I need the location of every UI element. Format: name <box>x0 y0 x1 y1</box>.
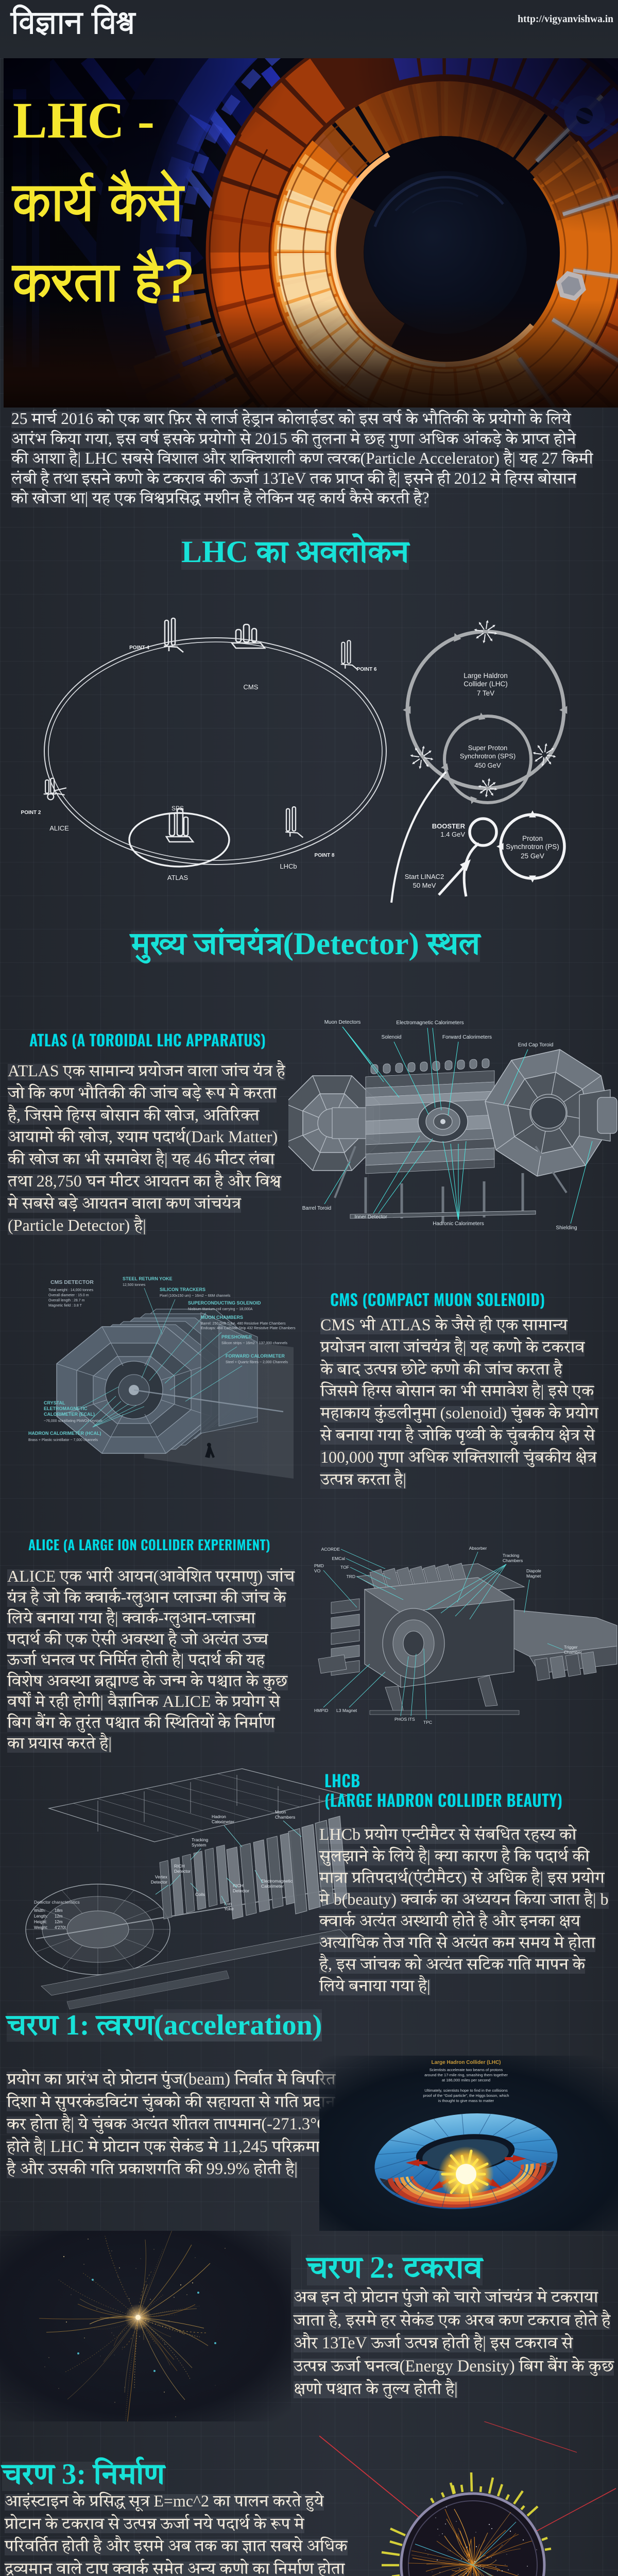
svg-text:1.4 GeV: 1.4 GeV <box>440 831 465 838</box>
svg-text:System: System <box>192 1842 206 1848</box>
svg-text:SILICON TRACKERS: SILICON TRACKERS <box>160 1287 205 1292</box>
svg-text:Hadronic Calorimeters: Hadronic Calorimeters <box>433 1221 484 1227</box>
svg-text:PMD: PMD <box>314 1563 324 1568</box>
svg-text:Start LINAC2: Start LINAC2 <box>405 873 444 880</box>
svg-text:Detector: Detector <box>151 1879 167 1885</box>
svg-text:at 186,000 miles per second: at 186,000 miles per second <box>442 2078 490 2082</box>
svg-text:proof of the “God particle”, t: proof of the “God particle”, the Higgs b… <box>423 2093 509 2098</box>
svg-text:EMCal: EMCal <box>332 1556 345 1561</box>
svg-text:Inner Detector: Inner Detector <box>354 1214 387 1220</box>
svg-text:Coils: Coils <box>195 1892 205 1897</box>
svg-text:TRD: TRD <box>347 1574 355 1579</box>
svg-text:Collider (LHC): Collider (LHC) <box>463 680 508 688</box>
svg-text:MUON CHAMBERS: MUON CHAMBERS <box>201 1315 243 1320</box>
svg-text:LHCb: LHCb <box>280 862 297 870</box>
svg-text:Pixel (100x150 um) ~ 16m2 ~ 66: Pixel (100x150 um) ~ 16m2 ~ 66M channels <box>160 1294 231 1298</box>
svg-text:Detector characteristics: Detector characteristics <box>34 1900 80 1905</box>
svg-text:CMS DETECTOR: CMS DETECTOR <box>50 1279 94 1285</box>
svg-text:POINT 2: POINT 2 <box>21 810 41 816</box>
svg-text:Muon: Muon <box>275 1809 286 1815</box>
svg-text:POINT 6: POINT 6 <box>357 667 377 672</box>
svg-text:450 GeV: 450 GeV <box>474 761 501 769</box>
svg-text:FORWARD CALORIMETER: FORWARD CALORIMETER <box>226 1353 285 1359</box>
svg-text:L3 Magnet: L3 Magnet <box>336 1708 357 1713</box>
svg-text:POINT 4: POINT 4 <box>129 645 149 651</box>
svg-text:Detector: Detector <box>233 1888 249 1893</box>
svg-text:PHOS ITS: PHOS ITS <box>394 1717 415 1722</box>
svg-text:Electromagnetic Calorimeters: Electromagnetic Calorimeters <box>396 1020 463 1026</box>
svg-text:Calorimeter: Calorimeter <box>212 1819 234 1824</box>
svg-text:Brass + Plastic scintillator ~: Brass + Plastic scintillator ~ 7,000 cha… <box>28 1438 98 1442</box>
svg-text:ELETROMAGNETIC: ELETROMAGNETIC <box>44 1406 88 1411</box>
svg-text:Hadron: Hadron <box>212 1814 226 1819</box>
svg-text:Diapole: Diapole <box>526 1568 541 1573</box>
svg-text:Chambers: Chambers <box>503 1558 523 1563</box>
svg-text:RICH: RICH <box>233 1883 244 1888</box>
svg-text:STEEL RETURN YOKE: STEEL RETURN YOKE <box>123 1276 173 1281</box>
svg-text:7 TeV: 7 TeV <box>477 689 494 697</box>
svg-text:Calorimeter: Calorimeter <box>261 1884 284 1889</box>
svg-text:Width:: Width: <box>34 1908 46 1913</box>
svg-text:Absorber: Absorber <box>469 1546 487 1551</box>
svg-text:Muon Detectors: Muon Detectors <box>324 1020 361 1025</box>
svg-text:Silicon strips ~ 16m2 ~ 137,00: Silicon strips ~ 16m2 ~ 137,000 channels <box>221 1342 288 1345</box>
svg-text:Detector: Detector <box>174 1869 191 1874</box>
svg-text:SPS: SPS <box>171 805 184 812</box>
svg-text:Ultimately, scientists hope to: Ultimately, scientists hope to find in t… <box>424 2088 508 2093</box>
svg-text:around the 17-mile ring, smash: around the 17-mile ring, smashing them t… <box>424 2073 508 2077</box>
svg-text:ATLAS: ATLAS <box>167 874 188 882</box>
svg-text:HADRON CALORIMETER (HCAL): HADRON CALORIMETER (HCAL) <box>28 1431 101 1436</box>
svg-text:50 MeV: 50 MeV <box>413 882 436 889</box>
svg-text:End Cap Toroid: End Cap Toroid <box>518 1042 554 1048</box>
svg-text:Height:: Height: <box>34 1920 47 1924</box>
svg-text:Scientists accelerate two beam: Scientists accelerate two beams of proto… <box>430 2067 503 2072</box>
svg-text:TOF: TOF <box>340 1565 349 1570</box>
svg-text:CRYSTAL: CRYSTAL <box>44 1400 65 1405</box>
svg-text:Magnet: Magnet <box>526 1573 541 1579</box>
svg-text:12m: 12m <box>55 1920 63 1924</box>
svg-text:POINT 8: POINT 8 <box>315 853 335 858</box>
svg-text:TPC: TPC <box>423 1720 432 1725</box>
svg-text:ALICE: ALICE <box>49 824 69 832</box>
svg-text:Trigger: Trigger <box>564 1645 578 1650</box>
svg-text:RICH: RICH <box>174 1863 185 1869</box>
svg-text:HMPID: HMPID <box>314 1708 328 1713</box>
svg-text:Iron: Iron <box>224 1901 232 1906</box>
svg-text:ACORDE: ACORDE <box>321 1547 340 1552</box>
svg-text:Forward Calorimeters: Forward Calorimeters <box>442 1035 492 1040</box>
svg-text:Shielding: Shielding <box>556 1225 577 1231</box>
svg-text:Niobium titanium coil carrying: Niobium titanium coil carrying ~ 18,000A <box>188 1308 253 1311</box>
svg-text:Chambers: Chambers <box>275 1815 295 1820</box>
svg-text:Synchrotron (SPS): Synchrotron (SPS) <box>460 752 516 760</box>
svg-text:Tracking: Tracking <box>192 1837 209 1842</box>
svg-text:Electromagnetic: Electromagnetic <box>261 1878 293 1884</box>
svg-text:25 GeV: 25 GeV <box>521 852 544 860</box>
svg-text:Steel + Quartz fibres ~ 2,000: Steel + Quartz fibres ~ 2,000 Channels <box>226 1361 288 1364</box>
svg-text:Overall length : 28.7 m: Overall length : 28.7 m <box>48 1299 85 1302</box>
svg-text:Yoke: Yoke <box>224 1906 234 1911</box>
svg-text:18m: 18m <box>55 1908 63 1913</box>
svg-text:Endcaps: 468 Cathode Strip 432: Endcaps: 468 Cathode Strip 432 Resistive… <box>201 1327 296 1330</box>
svg-text:Length:: Length: <box>34 1914 48 1919</box>
svg-text:Large Haldron: Large Haldron <box>463 672 508 680</box>
svg-text:Chamber: Chamber <box>564 1650 582 1655</box>
svg-text:CALORIMETER (ECAL): CALORIMETER (ECAL) <box>44 1412 95 1417</box>
svg-text:Weight:: Weight: <box>34 1925 48 1930</box>
svg-text:PRESHOWER: PRESHOWER <box>221 1334 252 1340</box>
svg-text:Vertex: Vertex <box>155 1874 168 1879</box>
svg-text:~76,000 scintillating PbWO4 cr: ~76,000 scintillating PbWO4 crystals <box>44 1419 102 1423</box>
svg-text:SUPERCONDUCTING SOLENOID: SUPERCONDUCTING SOLENOID <box>188 1300 261 1306</box>
svg-text:Synchrotron (PS): Synchrotron (PS) <box>506 843 559 851</box>
svg-text:VO: VO <box>314 1568 321 1573</box>
svg-text:BOOSTER: BOOSTER <box>432 822 466 830</box>
svg-text:Barrel: 250 Drift Tube, 480 Re: Barrel: 250 Drift Tube, 480 Resistive Pl… <box>201 1322 286 1326</box>
svg-text:Overall diameter : 15.0 m: Overall diameter : 15.0 m <box>48 1294 89 1297</box>
svg-text:Magnetic field : 3.8 T: Magnetic field : 3.8 T <box>48 1304 82 1308</box>
svg-text:12,500 tonnes: 12,500 tonnes <box>123 1283 146 1287</box>
svg-text:Total weight : 14,000 tonnes: Total weight : 14,000 tonnes <box>48 1289 94 1292</box>
svg-text:12m: 12m <box>55 1914 63 1919</box>
svg-text:4'270t: 4'270t <box>55 1925 66 1930</box>
svg-text:CMS: CMS <box>244 683 259 691</box>
svg-text:Proton: Proton <box>522 835 543 842</box>
svg-text:Tracking: Tracking <box>503 1553 520 1558</box>
svg-text:Super Proton: Super Proton <box>468 744 508 752</box>
svg-text:Large Hadron Collider (LHC): Large Hadron Collider (LHC) <box>431 2060 501 2065</box>
svg-text:is thought to give mass to mat: is thought to give mass to matter <box>438 2098 494 2103</box>
svg-text:Solenoid: Solenoid <box>382 1035 402 1040</box>
